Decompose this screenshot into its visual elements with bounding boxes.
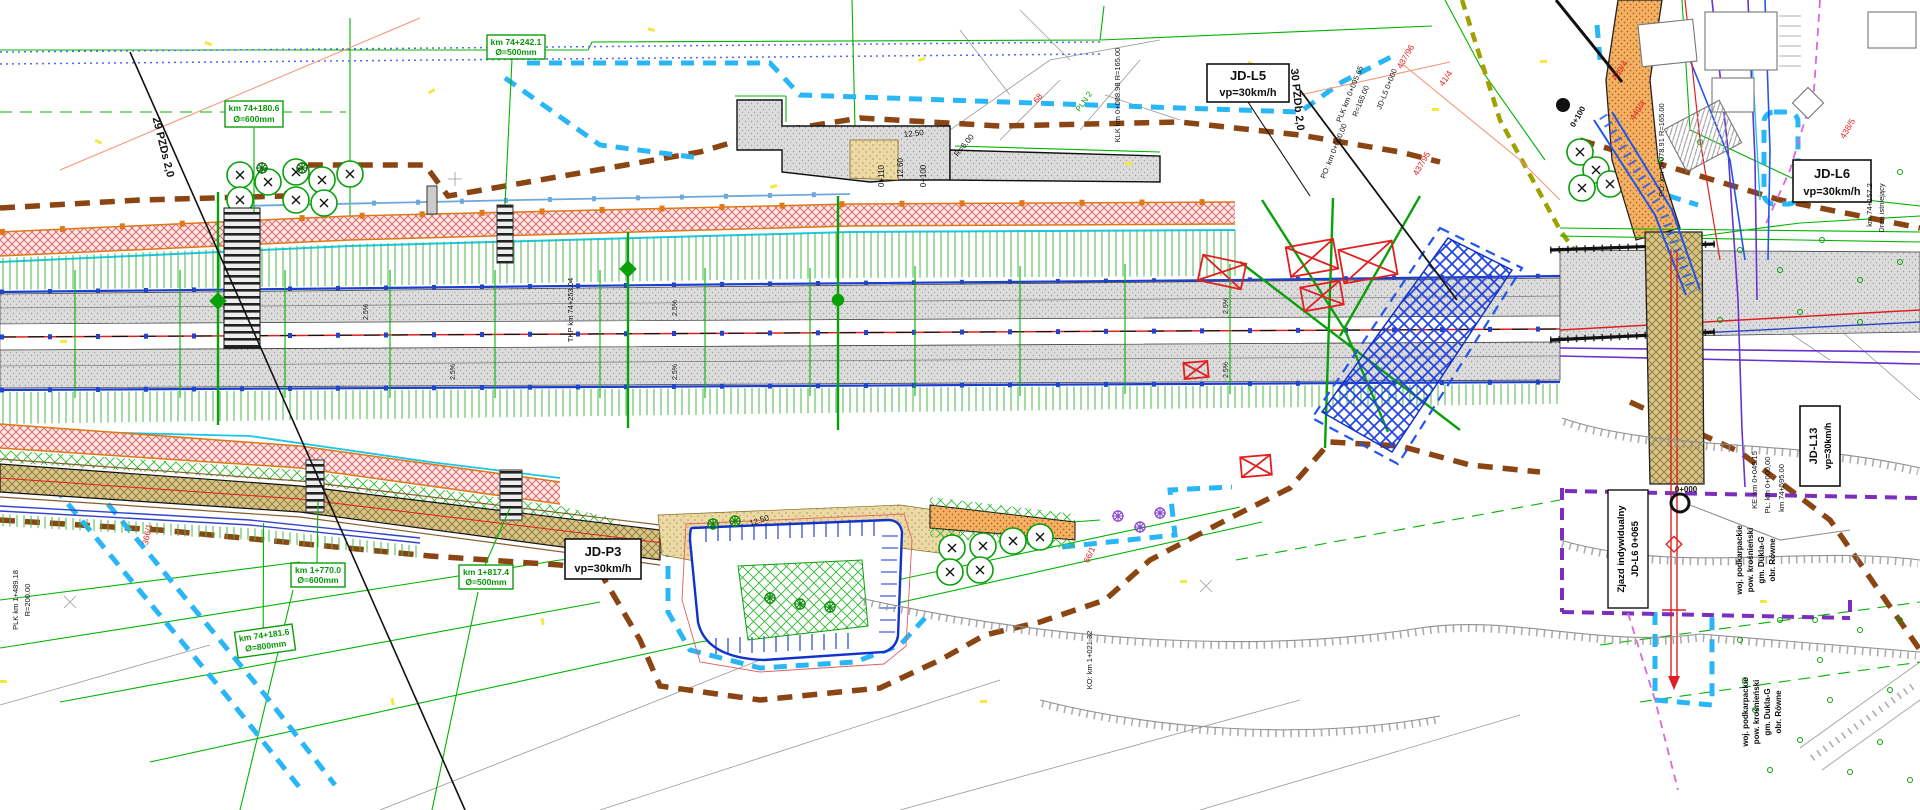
parcel-number: 438/5 <box>1838 117 1857 141</box>
note: PŁ: km 0+000,00 <box>1763 457 1772 514</box>
parcel-number: 66/1 <box>1081 545 1097 564</box>
route-speed: vp=30km/h <box>1803 186 1860 198</box>
admin-block-a: woj. podkarpackie pow. krośnieński gm. D… <box>1735 525 1777 596</box>
pipe-km: km 74+180.6 <box>229 103 280 113</box>
dimension: 0+110 <box>877 165 886 187</box>
note: TKP km 74+253.04 <box>566 278 575 342</box>
admin-line: woj. podkarpackie <box>1741 677 1750 748</box>
note: R=200.00 <box>23 584 32 617</box>
slope-label: 2.5% <box>672 364 679 380</box>
note: PO: km 0+078.91 R=165.00 <box>1657 103 1666 196</box>
chainage-node <box>1671 494 1689 512</box>
pipe-km: km 1+817.4 <box>463 567 509 577</box>
note: 0+000 <box>1675 485 1698 494</box>
admin-block-b: woj. podkarpackie pow. krośnieński gm. D… <box>1741 677 1783 748</box>
route-label-zjazd: Zjazd indywidualny JD-L6 0+065 <box>1608 490 1648 608</box>
slope-label: 2.5% <box>450 364 457 380</box>
zjazd-line1: Zjazd indywidualny <box>1616 505 1627 593</box>
route-name: JD-P3 <box>585 544 622 559</box>
note: KLK km 0+088.98 R=165.00 <box>1113 48 1122 143</box>
road-design-plan: km 74+180.6 Ø=600mm km 74+242.1 Ø=500mm … <box>0 0 1920 810</box>
dimension: 0+100 <box>919 164 928 187</box>
note: km 74+157.2 <box>1865 183 1874 227</box>
note: KO: km 1+021.32 <box>1085 631 1094 690</box>
parcel-number: 437/96 <box>1395 43 1417 71</box>
slope-label: 2.5% <box>1223 298 1230 314</box>
route-label-jd-l6: JD-L6 vp=30km/h <box>1793 160 1871 202</box>
note: PO: km 0+000,00 <box>1319 122 1349 180</box>
route-name: JD-L13 <box>1808 428 1820 465</box>
dimension: 12.60 <box>896 157 905 178</box>
admin-line: gm. Dukla-G <box>1757 536 1766 583</box>
note: JD-L5 0+000 <box>1374 67 1399 110</box>
note: PLK km 1+489.18 <box>11 570 20 630</box>
survey-label: PLN 2 <box>1074 89 1094 113</box>
route-label-jd-l5: JD-L5 vp=30km/h <box>1207 64 1289 102</box>
note: KE: km 0+049.15 <box>1750 451 1759 509</box>
route-name: JD-L6 <box>1814 166 1850 181</box>
admin-line: gm. Dukla-G <box>1763 688 1772 735</box>
note: 0+100 <box>1568 104 1587 128</box>
route-name: JD-L5 <box>1230 68 1266 83</box>
pipe-dia: Ø=600mm <box>297 575 339 585</box>
pipe-dia: Ø=600mm <box>233 114 275 124</box>
route-speed: vp=30km/h <box>1219 87 1276 99</box>
admin-line: obr. Równe <box>1774 690 1783 734</box>
admin-line: obr. Równe <box>1768 538 1777 582</box>
route-label-jd-l13: JD-L13 vp=30km/h <box>1800 406 1840 486</box>
side-road-top <box>735 96 1160 182</box>
pipe-dia: Ø=500mm <box>495 47 537 57</box>
purple-shrubs <box>1112 507 1166 533</box>
note: Dren istniejący <box>1877 183 1886 232</box>
admin-line: pow. krośnieński <box>1752 680 1761 745</box>
pipe-km: km 1+770.0 <box>295 565 341 575</box>
slope-label: 2.5% <box>1223 362 1230 378</box>
passage-label-pzdb: 30 PZDb 2,0 <box>1288 68 1306 131</box>
pipe-dia: Ø=500mm <box>465 577 507 587</box>
slope-label: 2.5% <box>672 300 679 316</box>
zjazd-line2: JD-L6 0+065 <box>1630 520 1641 576</box>
route-speed: vp=30km/h <box>1823 423 1833 470</box>
note: km 74+595.00 <box>1777 464 1786 512</box>
admin-line: pow. krośnieński <box>1746 528 1755 593</box>
buildings <box>1638 12 1916 172</box>
slope-label: 2.5% <box>363 304 370 320</box>
pipe-km: km 74+242.1 <box>491 37 542 47</box>
admin-line: woj. podkarpackie <box>1735 525 1744 596</box>
route-label-jd-p3: JD-P3 vp=30km/h <box>565 539 641 579</box>
parcel-number: 41/4 <box>1437 68 1455 88</box>
plan-canvas: km 74+180.6 Ø=600mm km 74+242.1 Ø=500mm … <box>0 0 1920 810</box>
route-speed: vp=30km/h <box>574 563 631 575</box>
parking-area <box>658 497 1075 672</box>
